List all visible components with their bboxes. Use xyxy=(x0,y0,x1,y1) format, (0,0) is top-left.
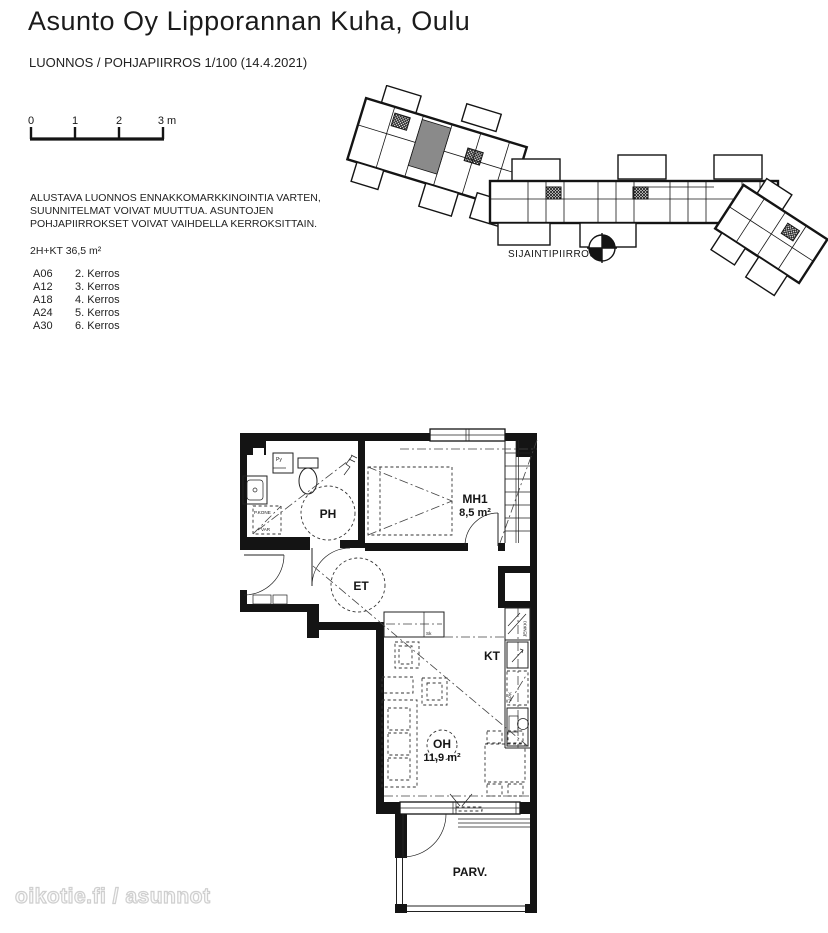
walls xyxy=(240,433,537,913)
pkone-label: P.KONE xyxy=(254,510,271,515)
watermark: oikotie.fi / asunnot xyxy=(15,885,211,909)
electric-symbol xyxy=(344,455,357,475)
py-label: Py xyxy=(276,457,282,463)
disclaimer-line-2: SUUNNITELMAT VOIVAT MUUTTUA. ASUNTOJEN xyxy=(30,205,321,218)
apartment-row: A18 4. Kerros xyxy=(33,294,120,307)
disclaimer-line-3: POHJAPIIRROKSET VOIVAT VAIHDELLA KERROKS… xyxy=(30,218,321,231)
room-label-kt: KT xyxy=(484,649,501,663)
apartment-list: A06 2. Kerros A12 3. Kerros A18 4. Kerro… xyxy=(33,268,120,333)
scale-tick-0: 0 xyxy=(28,115,34,127)
apartment-unit: A06 xyxy=(33,268,75,281)
scale-tick-1: 1 xyxy=(72,115,78,127)
room-area-oh: 11,9 m² xyxy=(423,752,461,764)
apartment-unit: A18 xyxy=(33,294,75,307)
centerlines xyxy=(258,449,537,748)
page-subtitle: LUONNOS / POHJAPIIRROS 1/100 (14.4.2021) xyxy=(29,55,307,70)
site-plan-label: SIJAINTIPIIRROS xyxy=(508,249,597,260)
balcony-swing-door xyxy=(403,814,446,857)
apartment-floor: 2. Kerros xyxy=(75,268,120,281)
room-label-mh1: MH1 xyxy=(462,492,488,506)
apartment-row: A30 6. Kerros xyxy=(33,320,120,333)
stair-core xyxy=(546,187,561,199)
site-plan: SIJAINTIPIIRROS xyxy=(330,85,828,305)
toilet-icon xyxy=(298,458,318,494)
apartment-floor: 4. Kerros xyxy=(75,294,120,307)
apartment-unit: A30 xyxy=(33,320,75,333)
room-label-oh: OH xyxy=(433,737,451,751)
stove-icon xyxy=(507,642,528,668)
sk-label: Sk xyxy=(426,631,432,636)
room-label-ph: PH xyxy=(320,507,337,521)
sofa xyxy=(382,677,417,787)
apartment-unit: A24 xyxy=(33,307,75,320)
disclaimer-line-1: ALUSTAVA LUONNOS ENNAKKOMARKKINOINTIA VA… xyxy=(30,192,321,205)
room-label-et: ET xyxy=(353,579,369,593)
apartment-floor-plan: Py P.KONE VAR xyxy=(228,418,550,918)
page-title: Asunto Oy Lipporannan Kuha, Oulu xyxy=(28,6,470,37)
entry-door xyxy=(244,555,284,595)
jenkki-label: JENKKI xyxy=(523,621,528,637)
balcony-glazing xyxy=(458,819,530,827)
disclaimer-text: ALUSTAVA LUONNOS ENNAKKOMARKKINOINTIA VA… xyxy=(30,192,321,231)
apartment-row: A06 2. Kerros xyxy=(33,268,120,281)
var-label: VAR xyxy=(261,527,271,532)
ph-door xyxy=(312,548,350,586)
coffee-table xyxy=(422,678,447,705)
apartment-floor: 3. Kerros xyxy=(75,281,120,294)
apk-label: APK xyxy=(508,691,513,701)
room-label-parv: PARV. xyxy=(453,865,487,879)
apartment-row: A12 3. Kerros xyxy=(33,281,120,294)
scale-tick-3: 3 m xyxy=(158,115,176,127)
apartment-row: A24 5. Kerros xyxy=(33,307,120,320)
floorplan-page: Asunto Oy Lipporannan Kuha, Oulu LUONNOS… xyxy=(0,0,828,933)
bed xyxy=(368,467,452,535)
washer-box xyxy=(273,453,293,473)
scale-tick-2: 2 xyxy=(116,115,122,127)
scale-bar: 0 1 2 3 m xyxy=(28,114,188,148)
room-area-mh1: 8,5 m² xyxy=(459,507,491,519)
stair-core xyxy=(633,187,648,199)
armchair xyxy=(395,642,419,668)
apartment-floor: 6. Kerros xyxy=(75,320,120,333)
shoe-cabinet xyxy=(253,595,287,604)
window-balcony-door xyxy=(400,802,520,814)
window-top xyxy=(430,429,505,441)
apartment-type-label: 2H+KT 36,5 m² xyxy=(30,245,101,257)
apartment-unit: A12 xyxy=(33,281,75,294)
apartment-floor: 5. Kerros xyxy=(75,307,120,320)
